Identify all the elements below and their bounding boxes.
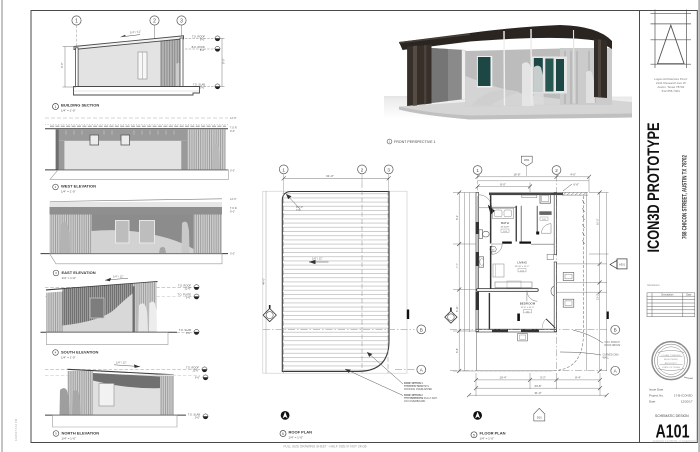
svg-text:12/20/17: 12/20/17 [681,399,693,403]
svg-text:6'-0": 6'-0" [574,183,580,187]
svg-text:ROOF PLAN: ROOF PLAN [289,430,313,435]
svg-text:5'-2": 5'-2" [540,376,546,380]
svg-text:1: 1 [55,105,57,109]
svg-text:6'-11": 6'-11" [455,306,459,312]
svg-text:T.O.R.: T.O.R. [230,206,238,210]
svg-text:3: 3 [387,167,390,172]
svg-text:1/4" = 1'-0": 1/4" = 1'-0" [61,355,76,359]
svg-text:12'-0": 12'-0" [230,197,237,201]
svg-text:9'-0": 9'-0" [230,129,235,133]
svg-text:TYP.: TYP. [296,209,301,212]
svg-text:ON COVERBOARD: ON COVERBOARD [404,400,426,403]
svg-text:29'-10" x 11'-2": 29'-10" x 11'-2" [515,266,530,268]
svg-text:Revisions: Revisions [648,283,661,287]
svg-text:BATH: BATH [501,221,509,225]
svg-text:FULL SIZE DRAWING SHEET - HALF: FULL SIZE DRAWING SHEET - HALF SIZE IF N… [283,445,366,449]
svg-text:8'-0": 8'-0" [200,48,205,52]
svg-text:1/4" = 1'-0": 1/4" = 1'-0" [62,276,77,280]
svg-text:9'-0": 9'-0" [230,209,235,213]
svg-text:31'-0": 31'-0" [326,174,334,178]
svg-text:0'-0": 0'-0" [195,416,200,420]
svg-text:WEST ELEVATION: WEST ELEVATION [61,184,96,189]
svg-text:A101: A101 [656,421,690,442]
svg-text:8'-0": 8'-0" [500,182,506,186]
svg-text:SOUTH ELEVATION: SOUTH ELEVATION [61,350,99,355]
svg-text:6'-8": 6'-8" [455,348,459,353]
svg-text:D01: D01 [537,416,543,420]
svg-text:9'-0": 9'-0" [222,58,226,64]
svg-text:768 CHICON STREET, AUSTIN TX 7: 768 CHICON STREET, AUSTIN TX 78702 [682,155,689,239]
svg-text:1/4" / 12": 1/4" / 12" [116,361,127,365]
svg-text:512.555.7301: 512.555.7301 [662,89,681,93]
svg-text:LOGAN T WALKER: LOGAN T WALKER [661,354,681,357]
svg-text:48 SQFT: 48 SQFT [501,227,511,229]
svg-text:1/4" = 1'-0": 1/4" = 1'-0" [61,109,76,113]
svg-text:44'-0": 44'-0" [262,278,266,285]
svg-text:1/4" = 1'-0": 1/4" = 1'-0" [289,435,304,439]
svg-text:A301: A301 [619,263,626,267]
svg-text:SCHEMATIC DESIGN: SCHEMATIC DESIGN [655,414,689,418]
svg-text:2: 2 [361,167,364,172]
svg-text:17-B-ICON3D: 17-B-ICON3D [674,393,694,397]
svg-text:Description: Description [661,293,674,296]
svg-text:ROOFING OVERLAPPED: ROOFING OVERLAPPED [404,388,432,391]
svg-text:13'-2": 13'-2" [595,293,599,300]
svg-text:10'-4": 10'-4" [499,376,506,380]
svg-text:1: 1 [476,168,479,173]
svg-text:9'-0": 9'-0" [60,62,64,68]
svg-text:WALL: WALL [603,357,610,360]
svg-text:11'-6" x 10'-0": 11'-6" x 10'-0" [521,307,535,309]
svg-text:24'-8": 24'-8" [534,384,541,388]
svg-text:FLOOR PLAN: FLOOR PLAN [480,431,506,436]
svg-text:1: 1 [75,19,78,25]
svg-text:2: 2 [153,19,156,25]
svg-text:12/20/17 4:12 PM: 12/20/17 4:12 PM [14,418,18,441]
svg-text:EAST ELEVATION: EAST ELEVATION [62,270,96,275]
svg-text:12/20/2017 4:12:55 PM - C:\USE: 12/20/2017 4:12:55 PM - C:\USERS\PLOT [652,440,698,443]
svg-text:8'-4": 8'-4" [575,376,581,380]
svg-text:12'-0": 12'-0" [230,116,237,120]
svg-text:1: 1 [282,167,285,172]
svg-text:9'-0": 9'-0" [186,296,191,300]
svg-text:6: 6 [282,432,284,436]
svg-text:T.O.R.: T.O.R. [230,126,238,130]
svg-text:9'-0": 9'-0" [195,376,200,380]
svg-text:BUILDING SECTION: BUILDING SECTION [61,103,99,108]
svg-text:Date: Date [649,399,656,403]
svg-text:FRONT PERSPECTIVE 1: FRONT PERSPECTIVE 1 [394,140,435,144]
svg-text:8'-2": 8'-2" [455,215,459,220]
svg-text:B: B [420,327,423,332]
svg-text:Project No.: Project No. [649,393,664,397]
svg-text:B: B [614,328,617,333]
svg-text:1/4" = 1'-0": 1/4" = 1'-0" [62,436,77,440]
svg-text:1/4" / 12": 1/4" / 12" [113,275,124,279]
svg-text:W01: W01 [524,158,530,162]
svg-text:0'-0": 0'-0" [200,86,205,90]
svg-text:1/4" / 12": 1/4" / 12" [312,257,323,261]
svg-text:12'-0": 12'-0" [184,286,191,290]
svg-text:NORTH ELEVATION: NORTH ELEVATION [62,431,100,436]
svg-text:1/4" = 1'-0": 1/4" = 1'-0" [480,436,495,440]
svg-text:Date: Date [686,293,692,296]
svg-text:2: 2 [555,168,558,173]
svg-text:REGISTERED: REGISTERED [664,359,679,361]
svg-text:0'-0": 0'-0" [186,331,191,335]
svg-text:3: 3 [180,19,183,25]
svg-text:ROOF ABOVE: ROOF ABOVE [605,344,621,347]
svg-text:Issue Date: Issue Date [649,387,664,391]
svg-text:31'-0": 31'-0" [534,391,541,395]
svg-text:4'-6": 4'-6" [570,173,576,177]
svg-text:ARCHITECT: ARCHITECT [665,362,678,365]
svg-text:LIVING: LIVING [517,261,528,265]
svg-text:0'-0": 0'-0" [230,169,235,173]
svg-text:7'-7": 7'-7" [455,263,459,268]
svg-text:STATE OF TEXAS: STATE OF TEXAS [662,366,681,369]
svg-text:5: 5 [473,433,475,437]
svg-text:9'-0": 9'-0" [200,38,205,42]
svg-text:10'-2": 10'-2" [595,218,599,225]
svg-text:BEDROOM: BEDROOM [520,302,536,306]
svg-text:ICON3D PROTOTYPE: ICON3D PROTOTYPE [645,123,663,253]
svg-text:16'-8": 16'-8" [513,173,520,177]
svg-text:12'-0": 12'-0" [192,369,199,373]
svg-text:1/4" = 1'-0": 1/4" = 1'-0" [61,189,76,193]
svg-text:0'-0": 0'-0" [230,252,235,256]
